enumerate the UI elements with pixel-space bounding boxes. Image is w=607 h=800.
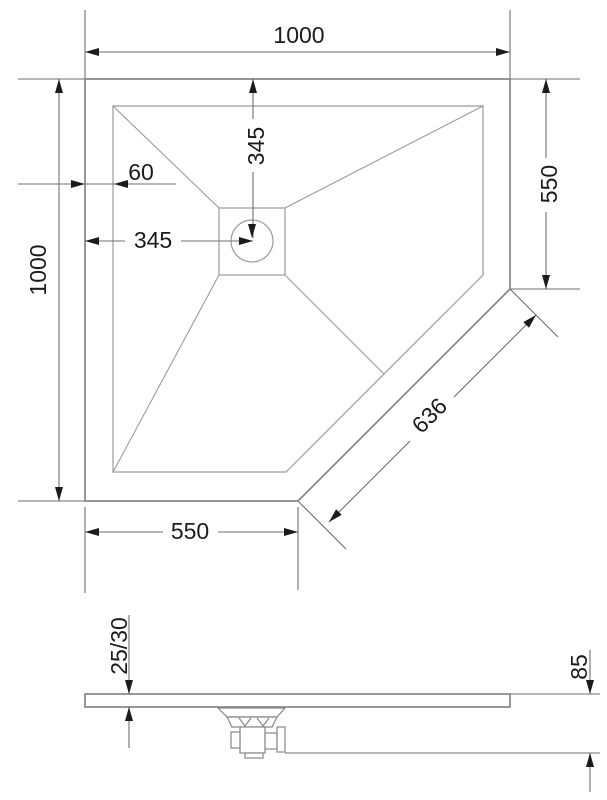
arrowhead-up — [249, 79, 257, 93]
plan-view: 1000 1000 60 345 — [18, 10, 580, 593]
dimension-tray-thickness: 25/30 — [106, 615, 133, 748]
dim-label-drain-offset-x: 345 — [134, 227, 172, 253]
arrowhead-left — [85, 528, 99, 536]
dimension-left-height: 1000 — [25, 79, 63, 501]
side-view: 25/30 85 — [85, 615, 600, 792]
crease-bottom-left — [113, 275, 219, 472]
tray-profile — [85, 694, 510, 707]
trap-body — [240, 727, 265, 753]
dimension-overall-height: 85 — [285, 650, 600, 792]
dimension-bottom-side: 550 — [85, 518, 298, 544]
arrowhead-up — [586, 753, 594, 767]
arrowhead-left — [85, 48, 99, 56]
arrowhead-up — [55, 79, 63, 93]
dim-label-drain-offset-y: 345 — [243, 127, 269, 165]
trap-left-cap — [231, 732, 240, 748]
arrowhead-right — [284, 528, 298, 536]
dimension-line — [454, 315, 536, 397]
dimension-top-width: 1000 — [85, 22, 510, 56]
arrowhead-left — [85, 237, 99, 245]
dimension-drain-offset-x: 345 — [85, 227, 253, 253]
trap-foot — [245, 753, 263, 758]
dimension-rim-width: 60 — [18, 159, 176, 188]
arrowhead-right — [496, 48, 510, 56]
arrowhead-down — [125, 680, 133, 694]
arrowhead-right — [71, 180, 85, 188]
arrowhead-down — [586, 680, 594, 694]
dimension-diagonal-cut: 636 — [329, 315, 536, 522]
extension-lines — [18, 10, 580, 593]
arrowhead-up — [542, 79, 550, 93]
drain-trap-assembly — [218, 708, 285, 758]
dim-label-bottom-side: 550 — [171, 518, 209, 544]
tray-outer-edge — [85, 79, 510, 501]
dim-label-rim-width: 60 — [128, 159, 154, 185]
crease-top-right — [285, 106, 483, 208]
dim-label-tray-thickness: 25/30 — [106, 617, 132, 675]
dimension-line — [329, 441, 410, 522]
crease-bottom-right — [285, 275, 384, 374]
arrowhead-left — [114, 180, 128, 188]
trap-outlet-pipe — [265, 733, 277, 749]
ext-diagonal-lower — [298, 501, 346, 549]
dimension-right-side: 550 — [536, 79, 562, 289]
dim-label-right-side: 550 — [536, 165, 562, 203]
arrowhead-down — [248, 224, 256, 238]
crease-top-left — [113, 106, 219, 208]
trap-outlet-flange — [277, 727, 285, 752]
dim-label-diagonal-cut: 636 — [407, 393, 453, 439]
dim-label-top-width: 1000 — [273, 22, 324, 48]
dim-label-left-height: 1000 — [25, 244, 51, 295]
drain-flange — [218, 708, 285, 717]
arrowhead-right — [239, 237, 253, 245]
drain-collar — [227, 717, 277, 727]
technical-drawing-canvas: 1000 1000 60 345 — [0, 0, 607, 800]
dim-label-overall-height: 85 — [566, 654, 592, 680]
ext-diagonal-upper — [510, 289, 558, 337]
arrowhead-up — [125, 707, 133, 721]
arrowhead-down — [542, 275, 550, 289]
arrowhead-down — [55, 487, 63, 501]
dimension-drain-offset-y: 345 — [243, 79, 269, 238]
